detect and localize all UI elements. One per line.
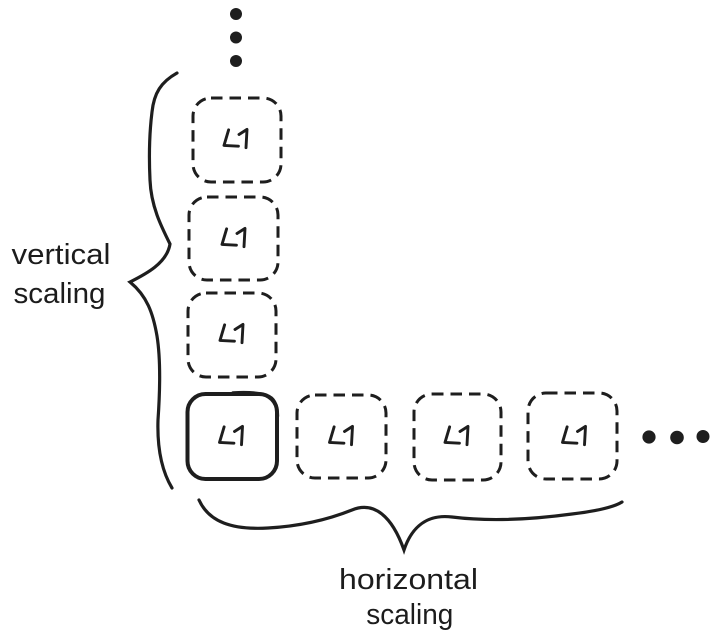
- svg-text:vertical: vertical: [12, 239, 111, 271]
- svg-text:scaling: scaling: [366, 599, 453, 631]
- svg-text:horizontal: horizontal: [339, 564, 478, 596]
- svg-text:scaling: scaling: [14, 278, 106, 310]
